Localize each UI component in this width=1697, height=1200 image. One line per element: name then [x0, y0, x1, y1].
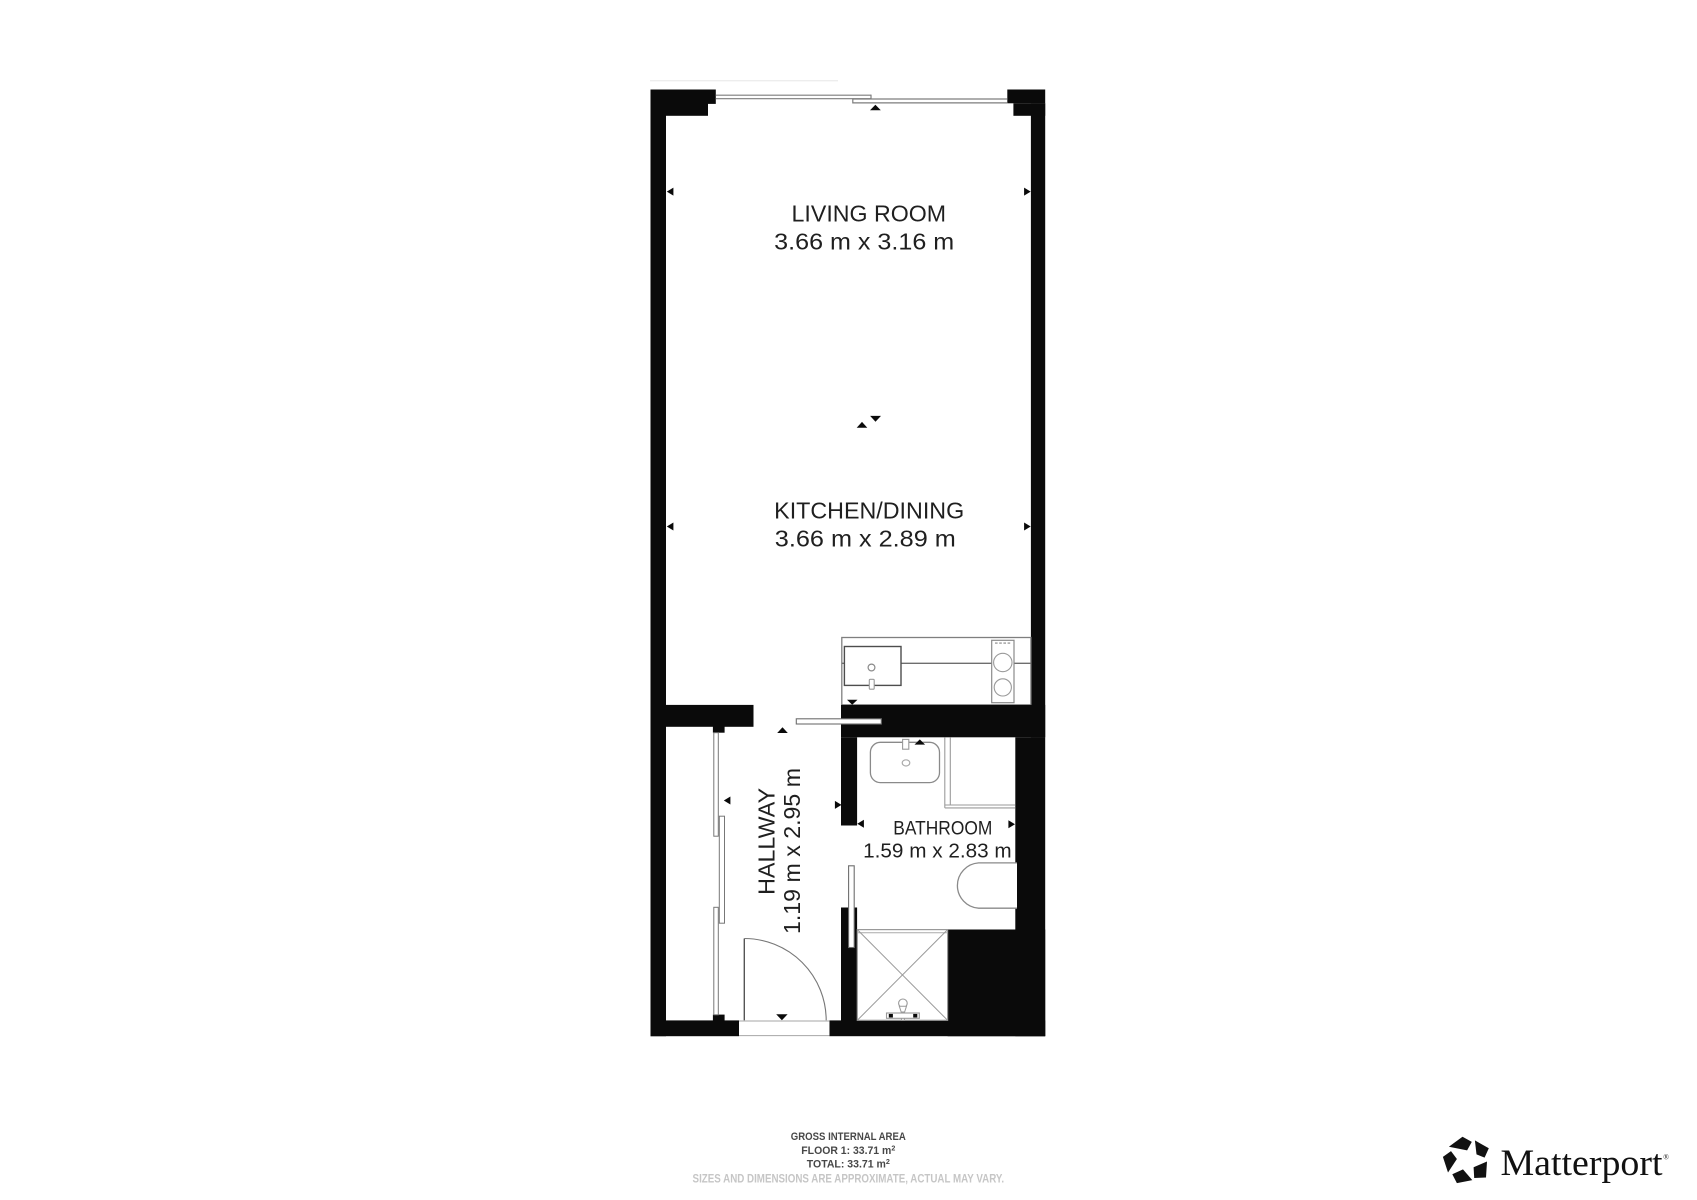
- svg-text:KITCHEN/DINING: KITCHEN/DINING: [774, 498, 964, 524]
- svg-text:®: ®: [1663, 1153, 1669, 1162]
- svg-text:FLOOR 1: 33.71 m2: FLOOR 1: 33.71 m2: [801, 1143, 895, 1157]
- svg-text:LIVING ROOM: LIVING ROOM: [792, 201, 947, 227]
- svg-text:SIZES AND DIMENSIONS ARE APPRO: SIZES AND DIMENSIONS ARE APPROXIMATE, AC…: [693, 1174, 1005, 1186]
- svg-text:3.66 m x 2.89 m: 3.66 m x 2.89 m: [775, 525, 956, 551]
- svg-text:Matterport: Matterport: [1501, 1143, 1664, 1184]
- svg-text:1.19 m x 2.95 m: 1.19 m x 2.95 m: [779, 768, 805, 934]
- svg-text:GROSS INTERNAL AREA: GROSS INTERNAL AREA: [791, 1131, 906, 1143]
- svg-text:BATHROOM: BATHROOM: [893, 818, 992, 840]
- svg-text:TOTAL: 33.71 m2: TOTAL: 33.71 m2: [807, 1157, 890, 1171]
- svg-text:3.66 m x 3.16 m: 3.66 m x 3.16 m: [774, 228, 954, 254]
- svg-text:1.59 m x 2.83 m: 1.59 m x 2.83 m: [863, 840, 1012, 862]
- svg-text:HALLWAY: HALLWAY: [754, 788, 780, 895]
